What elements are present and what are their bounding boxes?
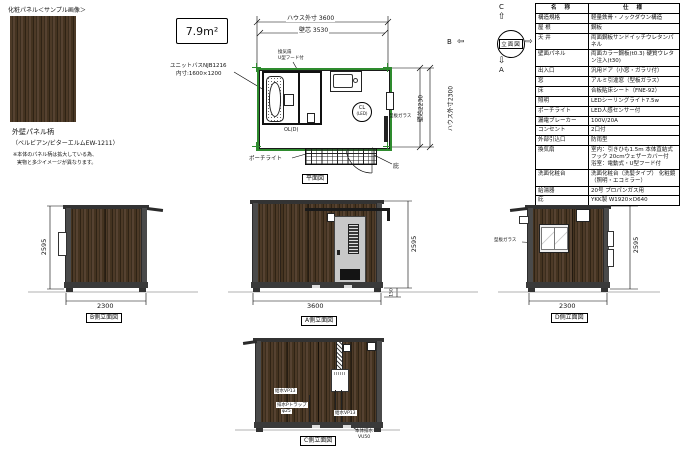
elevation-d-building	[527, 205, 609, 288]
flue-cap	[343, 344, 351, 352]
tie-down-slot	[312, 285, 320, 288]
table-row: 照明LEDシーリングライト7.5w	[536, 96, 679, 106]
spec-name: 洗面化粧台	[536, 170, 589, 186]
spec-value: 2口付	[589, 126, 679, 135]
corner-post	[376, 203, 382, 283]
door-window	[348, 224, 359, 254]
spec-header-spec: 仕 様	[589, 4, 679, 13]
porchlight-label: ポーチライト	[249, 154, 282, 162]
spec-value: 100V/20A	[589, 117, 679, 126]
spec-name: 照明	[536, 97, 589, 106]
spec-name: 床	[536, 87, 589, 96]
sliding-window	[539, 224, 569, 253]
elevation-key-circle: 立面図	[497, 30, 525, 58]
tie-down-slot	[344, 285, 352, 288]
table-row: 洗面化粧台洗面化粧台（洗髪タイプ） 化粧鏡（照明・エコミラー）	[536, 169, 679, 186]
spec-value: LEDシーリングライト7.5w	[589, 97, 679, 106]
corner-post	[376, 341, 382, 423]
canopy-side-profile	[147, 207, 163, 212]
bath-door-swing	[308, 114, 314, 122]
washbasin-bowl	[333, 74, 353, 88]
spec-value: 洗面化粧台（洗髪タイプ） 化粧鏡（照明・エコミラー）	[589, 170, 679, 186]
spec-name: 給湯器	[536, 187, 589, 196]
plan-corner-mark	[252, 63, 261, 72]
roof-edge	[63, 205, 149, 209]
foot	[256, 428, 263, 432]
elevation-d-caption: D側立面図	[551, 313, 588, 323]
flue-pipe	[336, 342, 343, 370]
elevation-d-width: 2300	[558, 302, 577, 310]
table-row: 外部引込口防雨型	[536, 135, 679, 145]
porch-deck	[305, 148, 377, 165]
panel-code: （ベルビアン/ビターエルムEW-1211）	[12, 138, 119, 147]
heater-vent	[334, 372, 346, 375]
panel-seam	[318, 342, 319, 422]
wall-panel	[65, 209, 147, 282]
elevation-b-height: 2595	[40, 227, 48, 267]
elevation-d-glass-label: 型板ガラス	[494, 237, 516, 243]
spec-value: 汎用ドア（小窓・ガラリ付）	[589, 67, 679, 76]
spec-name: 屋 根	[536, 24, 589, 33]
plan-corner-mark	[383, 142, 392, 151]
panel-seam	[105, 209, 106, 282]
plan-entry-window	[384, 116, 388, 142]
ceiling-light-sub: (LED)	[357, 111, 368, 116]
window-sash	[554, 227, 568, 250]
c-trap-label-2: φ25	[281, 409, 292, 414]
spec-header-name: 名 称	[536, 4, 589, 13]
canopy-bracket	[387, 208, 390, 221]
pipe	[309, 395, 310, 423]
panel-sample-swatch	[10, 16, 76, 122]
foot	[374, 428, 381, 432]
foot	[66, 288, 73, 292]
roof-edge	[525, 205, 611, 209]
spec-name: 漏電ブレーカー	[536, 117, 589, 126]
spec-name: 出入口	[536, 67, 589, 76]
canopy-bracket	[519, 216, 529, 224]
base-frame	[526, 282, 610, 288]
table-row: 出入口汎用ドア（小窓・ガラリ付）	[536, 66, 679, 76]
elevation-b-caption: B側立面図	[86, 313, 122, 323]
unit-bath-room	[262, 71, 322, 125]
table-row: ポーチライトLED人感センサー付	[536, 106, 679, 116]
c-drain-label-2: VU50	[358, 435, 370, 440]
right-arrow-icon: ⇨	[525, 37, 533, 47]
foot	[374, 288, 381, 292]
left-arrow-icon: ⇦	[457, 37, 465, 47]
elevation-a-caption: A側立面図	[301, 316, 337, 326]
bathtub	[266, 76, 284, 122]
panel-seam	[308, 204, 309, 282]
spec-table: 名 称 仕 様 構造規格軽量鉄骨・ノックダウン構造 屋 根鋼板 天 井両面鋼板サ…	[535, 3, 680, 206]
spec-value: LED人感センサー付	[589, 107, 679, 116]
exterior-fixture	[607, 249, 614, 267]
c-trap-label-1: 排水Pトラップ	[276, 402, 308, 408]
entrance-door	[334, 216, 366, 288]
pipe	[341, 390, 342, 423]
washbasin-drain	[353, 78, 358, 83]
dim-outer-height: ハウス外寸2300	[446, 79, 455, 139]
panel-seam	[280, 204, 281, 282]
compass-a: A	[499, 66, 504, 74]
plan-side-window	[386, 92, 394, 110]
spec-value: YKK製 W1920×D640	[589, 196, 679, 205]
corner-post	[141, 208, 147, 283]
spec-name: 天 井	[536, 34, 589, 50]
canopy-label: 庇	[393, 161, 399, 170]
ceiling-light-symbol: CL (LED)	[352, 102, 372, 122]
corner-post	[255, 341, 261, 423]
unitbath-label-1: ユニットバスNJB1216	[170, 61, 227, 69]
elevation-a-building	[252, 200, 382, 288]
drawing-canvas: 化粧パネル＜サンプル画像＞ 外壁パネル柄 （ベルビアン/ビターエルムEW-121…	[0, 0, 680, 450]
table-row: 窓アルミ引違窓（型板ガラス）	[536, 76, 679, 86]
roof-edge	[250, 200, 384, 204]
washbasin	[330, 71, 362, 92]
spec-name: 換気扇	[536, 146, 589, 169]
vent-window	[576, 209, 590, 222]
panel-caption: 外壁パネル柄	[12, 127, 54, 137]
vent-note-2: U型フード付	[278, 55, 304, 61]
vent-hood	[367, 342, 376, 351]
spec-value: 両面鋼板サンドイッチウレタンパネル	[589, 34, 679, 50]
table-row: 構造規格軽量鉄骨・ノックダウン構造	[536, 13, 679, 23]
c-supply-label: 給水VP13	[274, 388, 297, 394]
ol-label: OL(D)	[284, 127, 298, 133]
plan-caption: 平面図	[302, 174, 328, 184]
door-vent	[340, 269, 360, 280]
foot	[139, 288, 146, 292]
table-row: 床合板貼床シート（FNE-92）	[536, 86, 679, 96]
canopy-side-profile	[510, 207, 527, 212]
spec-name: ポーチライト	[536, 107, 589, 116]
compass-c: C	[499, 3, 504, 11]
pipe	[335, 390, 336, 423]
roof-edge	[253, 338, 384, 342]
spec-name: コンセント	[536, 126, 589, 135]
panel-seam	[572, 209, 573, 282]
elevation-a-height: 2595	[410, 224, 418, 264]
table-row: 換気扇室内：引きひも1.5m 本体直結式フック 20cmウェザーカバー付 浴室：…	[536, 145, 679, 169]
plan-corner-mark	[383, 63, 392, 72]
up-arrow-icon: ⇧	[498, 12, 506, 22]
elevation-a-width: 3600	[306, 302, 325, 310]
table-row: 屋 根鋼板	[536, 23, 679, 33]
plan-corner-mark	[252, 142, 261, 151]
water-heater	[331, 369, 349, 392]
canopy	[305, 208, 390, 211]
table-row: 壁面パネル両面カラー鋼板(t0.3) 硬質ウレタン注入(t30)	[536, 49, 679, 66]
c-supply2-label: 給水VP13	[334, 410, 357, 416]
elevation-b-building	[65, 205, 147, 288]
spec-value: 20号 プロパンガス用	[589, 187, 679, 196]
spec-name: 窓	[536, 77, 589, 86]
down-arrow-icon: ⇩	[498, 56, 506, 66]
spec-value: アルミ引違窓（型板ガラス）	[589, 77, 679, 86]
corner-post	[252, 203, 258, 283]
elevation-c-building	[255, 338, 382, 428]
tie-down-slot	[312, 425, 320, 428]
table-row: 漏電ブレーカー100V/20A	[536, 116, 679, 126]
spec-value: 両面カラー鋼板(t0.3) 硬質ウレタン注入(t30)	[589, 50, 679, 66]
panel-sample-title: 化粧パネル＜サンプル画像＞	[8, 5, 86, 14]
table-row: 庇YKK製 W1920×D640	[536, 195, 679, 205]
unitbath-label-2: 内寸:1600×1200	[176, 69, 221, 77]
plan-glass-label: 型板ガラス	[389, 113, 411, 119]
table-row: 天 井両面鋼板サンドイッチウレタンパネル	[536, 33, 679, 50]
panel-note-2: 実物と多少イメージが異なります。	[17, 159, 96, 166]
spec-name: 壁面パネル	[536, 50, 589, 66]
panel-note-1: ※本体のパネル柄は拡大している為、	[13, 151, 97, 158]
dim-core-height: 壁芯2230	[416, 89, 425, 129]
spec-name: 外部引込口	[536, 136, 589, 145]
service-box	[58, 232, 67, 256]
elevation-key-label: 立面図	[499, 39, 523, 49]
door-handle	[337, 250, 340, 255]
foot	[528, 288, 535, 292]
tie-down-slot	[343, 425, 351, 428]
dim-outer-width: ハウス外寸 3600	[286, 13, 335, 22]
spec-name: 庇	[536, 196, 589, 205]
spec-value: 防雨型	[589, 136, 679, 145]
elevation-d-height: 2595	[632, 225, 640, 265]
spec-value: 鋼板	[589, 24, 679, 33]
foot	[253, 288, 260, 292]
compass-b: B	[447, 38, 452, 46]
elevation-a-floor-height: 150	[390, 283, 395, 303]
base-frame	[64, 282, 148, 288]
table-row: コンセント2口付	[536, 125, 679, 135]
spec-value: 合板貼床シート（FNE-92）	[589, 87, 679, 96]
spec-value: 室内：引きひも1.5m 本体直結式フック 20cmウェザーカバー付 浴室：電動式…	[589, 146, 679, 169]
elevation-b-width: 2300	[96, 302, 115, 310]
exterior-fixture	[607, 231, 614, 247]
spec-name: 構造規格	[536, 14, 589, 23]
bath-faucet-box	[284, 94, 294, 106]
spec-value: 軽量鉄骨・ノックダウン構造	[589, 14, 679, 23]
window-sash	[541, 227, 555, 250]
elevation-c-caption: C側立面図	[300, 436, 336, 446]
table-row: 給湯器20号 プロパンガス用	[536, 186, 679, 196]
bath-partition-wall	[298, 73, 300, 123]
floor-area-badge: 7.9m²	[176, 18, 228, 44]
dim-core-width: 壁芯 3530	[298, 25, 329, 34]
c-drain-label-1: 本体排水	[355, 428, 373, 434]
spec-header-row: 名 称 仕 様	[536, 4, 679, 13]
bathtub-basin	[269, 82, 281, 117]
foot	[601, 288, 608, 292]
